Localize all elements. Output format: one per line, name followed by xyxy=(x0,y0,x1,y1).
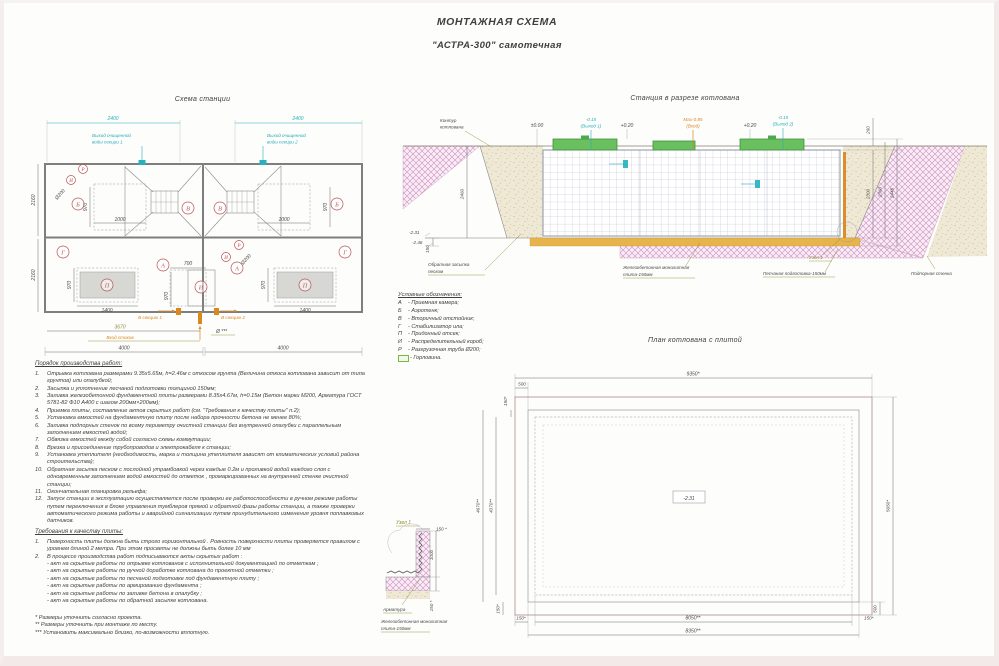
dim-d200-left: Ø200 xyxy=(53,188,66,202)
station-plan-title: Схема станции xyxy=(125,96,280,103)
work-order-item: 6. Заливка подпорных стенок по всему пер… xyxy=(35,423,371,438)
svg-text:П: П xyxy=(302,282,308,289)
pit-plan-dims: 9350* 500 150* 4670** 4370** 5650* 500 1… xyxy=(476,372,898,639)
dim-2400-right: 2400 xyxy=(291,116,303,122)
act-item: - акт на скрытые работы по ручной дорабо… xyxy=(47,568,371,575)
station-body xyxy=(543,136,846,239)
dim-150-bottom-b: 150* xyxy=(864,616,874,621)
dim-500-top: 500 xyxy=(518,382,526,387)
svg-text:1000: 1000 xyxy=(114,217,125,223)
svg-text:Б: Б xyxy=(334,201,339,208)
work-order-item: 7. Обвязка емкостей между собой согласно… xyxy=(35,437,371,444)
work-order-item: 9. Установка утеплителя (необходимость, … xyxy=(35,452,371,467)
node-detail-title: Узел 1 xyxy=(396,520,411,526)
svg-text:Р: Р xyxy=(236,244,240,249)
work-order-title: Порядок производства работ: xyxy=(35,361,371,369)
svg-text:1400: 1400 xyxy=(299,308,310,314)
legend-title: Условные обозначения: xyxy=(398,291,558,299)
elev-inlet: Мах-0.85 xyxy=(683,117,703,122)
act-item: - акт на скрытые работы по песчаной подг… xyxy=(47,576,371,583)
dim-500-right: 500 xyxy=(873,605,878,613)
requirements-title: Требования к качеству плиты: xyxy=(35,529,371,537)
legend-item: И - Распределительный короб; xyxy=(398,339,558,347)
dim-4000-left: 4000 xyxy=(118,346,129,352)
svg-text:Р: Р xyxy=(80,168,84,173)
footnote: * Размеры уточнить согласно проекта. xyxy=(35,615,371,622)
work-order-item: 11. Окончательная планировка рельефа; xyxy=(35,489,371,496)
dim-4670: 4670** xyxy=(476,499,481,513)
dim-8350: 8350** xyxy=(685,629,701,635)
legend-items: А - Приемная камера; Б - Аэротенк; В - В… xyxy=(398,300,558,355)
work-order-item: 8. Врезка и присоединение трубопроводов … xyxy=(35,445,371,452)
legend-item: В - Вторичный отстойник; xyxy=(398,316,558,324)
dim-2160-bottom: 2160 xyxy=(31,269,37,281)
dim-9350: 9350* xyxy=(686,372,700,378)
dim-150-topleft: 150* xyxy=(503,396,508,406)
dim-5650: 5650* xyxy=(886,500,891,512)
pit-plan-rects: -2.31 xyxy=(515,397,872,615)
svg-text:970: 970 xyxy=(323,203,329,212)
elev-out2: -0.15 xyxy=(778,115,789,120)
outlet1-label: Выход очищенной xyxy=(92,132,131,138)
to-section1-label: В секцию 1 xyxy=(138,315,162,320)
svg-text:плита-150мм: плита-150мм xyxy=(381,626,411,631)
drawing-sheet: МОНТАЖНАЯ СХЕМА "АСТРА-300" самотечная С… xyxy=(0,0,999,666)
requirements: Требования к качеству плиты: 1. Поверхно… xyxy=(35,529,371,605)
retaining-label: Подпорная стенка xyxy=(911,271,952,276)
elev-plus020-a: +0.20 xyxy=(621,123,634,129)
node-detail-drawing: Узел 1 150 * 1000 150 * Арматура Железоб… xyxy=(378,513,493,658)
work-order-item: 10. Обратная засыпка песком с послойной … xyxy=(35,467,371,489)
svg-text:А: А xyxy=(160,262,165,269)
dim-3670: 3670 xyxy=(114,325,125,331)
elev-plus020-b: +0.20 xyxy=(744,123,757,129)
act-item: - акт на скрытые работы по заливке бетон… xyxy=(47,591,371,598)
svg-text:Г: Г xyxy=(342,249,347,256)
work-order-item: 3. Заливка железобетонной фундаментной п… xyxy=(35,393,371,408)
svg-text:И: И xyxy=(198,284,204,291)
outlet2-label: Выход очищенной xyxy=(267,132,306,138)
svg-text:песком: песком xyxy=(428,269,444,274)
dim-150-sand: 150 xyxy=(425,245,430,253)
footnote: ** Размеры уточнить при монтаже по месту… xyxy=(35,622,371,629)
backfill-label: Обратная засыпка xyxy=(428,262,470,267)
svg-text:970: 970 xyxy=(67,281,73,290)
svg-text:Г: Г xyxy=(60,249,65,256)
svg-text:700: 700 xyxy=(184,261,193,267)
svg-text:И: И xyxy=(68,179,73,184)
dim-150-bottomleft: 150* xyxy=(496,604,501,614)
svg-text:В: В xyxy=(186,205,190,212)
svg-text:И: И xyxy=(223,256,228,261)
pit-plan-drawing: -2.31 9350* 500 150* 4670** 4370** 5650*… xyxy=(465,350,995,655)
dim-2160-top: 2160 xyxy=(31,194,37,206)
legend-item: Б - Аэротенк; xyxy=(398,308,558,316)
elev-out1: -0.15 xyxy=(586,117,597,122)
svg-text:(Выход 1): (Выход 1) xyxy=(581,124,602,129)
dim-150-wall: 150 * xyxy=(436,527,447,532)
elev-zero: ±0.00 xyxy=(531,123,544,129)
detail-section xyxy=(386,531,430,599)
gorlovina-box-icon xyxy=(398,355,409,362)
elev-bottom2: -2.46 xyxy=(412,240,423,245)
acts-list: - акт на скрытые работы по отрывке котло… xyxy=(47,561,371,605)
work-order-item: 5. Установка емкостей на фундаментную пл… xyxy=(35,415,371,422)
svg-text:П: П xyxy=(104,282,110,289)
dim-150-slab: 150 * xyxy=(429,600,434,611)
station-plan-drawing: 2400 2400 Выход очищенной воды секции 1 … xyxy=(30,112,380,362)
cross-section-title: Станция в разрезе котлована xyxy=(555,95,815,102)
svg-text:воды секции 2: воды секции 2 xyxy=(267,140,298,145)
act-item: - акт на скрытые работы по обратной засы… xyxy=(47,598,371,605)
plan-flow-annotations: В секцию 1 В секцию 2 3670 Вход стоков Ø… xyxy=(45,308,362,356)
work-order-item: 2. Засыпка и уплотнение песчаной подгото… xyxy=(35,386,371,393)
svg-text:970: 970 xyxy=(261,281,267,290)
requirements-list: 1. Поверхность плиты должна быть строго … xyxy=(35,539,371,561)
detail-plate-label: Железобетонная монолитная xyxy=(380,619,448,624)
dim-2360: 2360 xyxy=(878,186,883,198)
work-order-item: 12. Запуск станции в эксплуатацию осущес… xyxy=(35,496,371,526)
sheet-title: МОНТАЖНАЯ СХЕМА xyxy=(377,16,617,28)
pit-plan-title: План котлована с плитой xyxy=(580,337,810,344)
work-order-item: 1. Отрывка котлована размерами 9.35х5.65… xyxy=(35,371,371,386)
svg-text:Б: Б xyxy=(75,201,80,208)
dim-1000-wall: 1000 xyxy=(429,549,434,560)
plan-left-dims: 2160 2160 xyxy=(31,164,38,312)
act-item: - акт на скрытые работы по армированию ф… xyxy=(47,583,371,590)
svg-text:В: В xyxy=(218,205,222,212)
work-order: Порядок производства работ: 1. Отрывка к… xyxy=(35,361,371,526)
svg-text:котлована: котлована xyxy=(440,125,464,130)
legend-item: А - Приемная камера; xyxy=(398,300,558,308)
svg-text:(Вход): (Вход) xyxy=(686,124,700,129)
dim-260: 260 xyxy=(866,126,871,135)
svg-text:(Выход 2): (Выход 2) xyxy=(773,122,794,127)
dim-stars: Ø *** xyxy=(215,329,228,335)
svg-text:плита-150мм: плита-150мм xyxy=(623,272,653,277)
dim-8050: 8050** xyxy=(685,616,701,622)
dim-2445: 2445 xyxy=(890,187,895,199)
node-ref-label: Узел 1 xyxy=(809,255,823,260)
dim-150-bottom-a: 150* xyxy=(516,616,526,621)
footnotes: * Размеры уточнить согласно проекта. ** … xyxy=(35,615,371,637)
elev-bottom1: -2.31 xyxy=(409,230,420,235)
dim-2400-left: 2400 xyxy=(106,116,118,122)
cross-section-drawing: ±0.00 -0.15 (Выход 1) +0.20 Мах-0.85 (Вх… xyxy=(395,106,995,302)
dim-2460: 2460 xyxy=(460,188,465,200)
plate-label: Железобетонная монолитная xyxy=(622,265,690,270)
svg-text:А: А xyxy=(234,265,239,272)
sand-prep-label: Песчаная подготовка-150мм xyxy=(763,271,827,276)
svg-text:970: 970 xyxy=(164,292,170,301)
svg-text:воды секции 1: воды секции 1 xyxy=(92,140,123,145)
sheet-subtitle: "АСТРА-300" самотечная xyxy=(377,40,617,51)
svg-text:1400: 1400 xyxy=(101,308,112,314)
dim-4370: 4370** xyxy=(489,499,494,513)
footnote: *** Установить максимально близко, по-во… xyxy=(35,630,371,637)
to-section2-label: В секцию 2 xyxy=(221,315,245,320)
contour-label: Контур xyxy=(440,118,457,123)
dim-4000-right: 4000 xyxy=(277,346,288,352)
svg-text:1000: 1000 xyxy=(278,217,289,223)
inlet-label: Вход стоков xyxy=(106,335,134,340)
dim-2300: 2300 xyxy=(866,188,871,200)
pit-elevation: -2.31 xyxy=(683,496,695,502)
plan-top-dims: 2400 2400 Выход очищенной воды секции 1 … xyxy=(47,116,362,165)
requirements-item: 1. Поверхность плиты должна быть строго … xyxy=(35,539,371,554)
work-order-list: 1. Отрывка котлована размерами 9.35х5.65… xyxy=(35,371,371,526)
requirements-item: 2. В процессе производства работ подписы… xyxy=(35,554,371,561)
rebar-label: Арматура xyxy=(382,607,406,612)
